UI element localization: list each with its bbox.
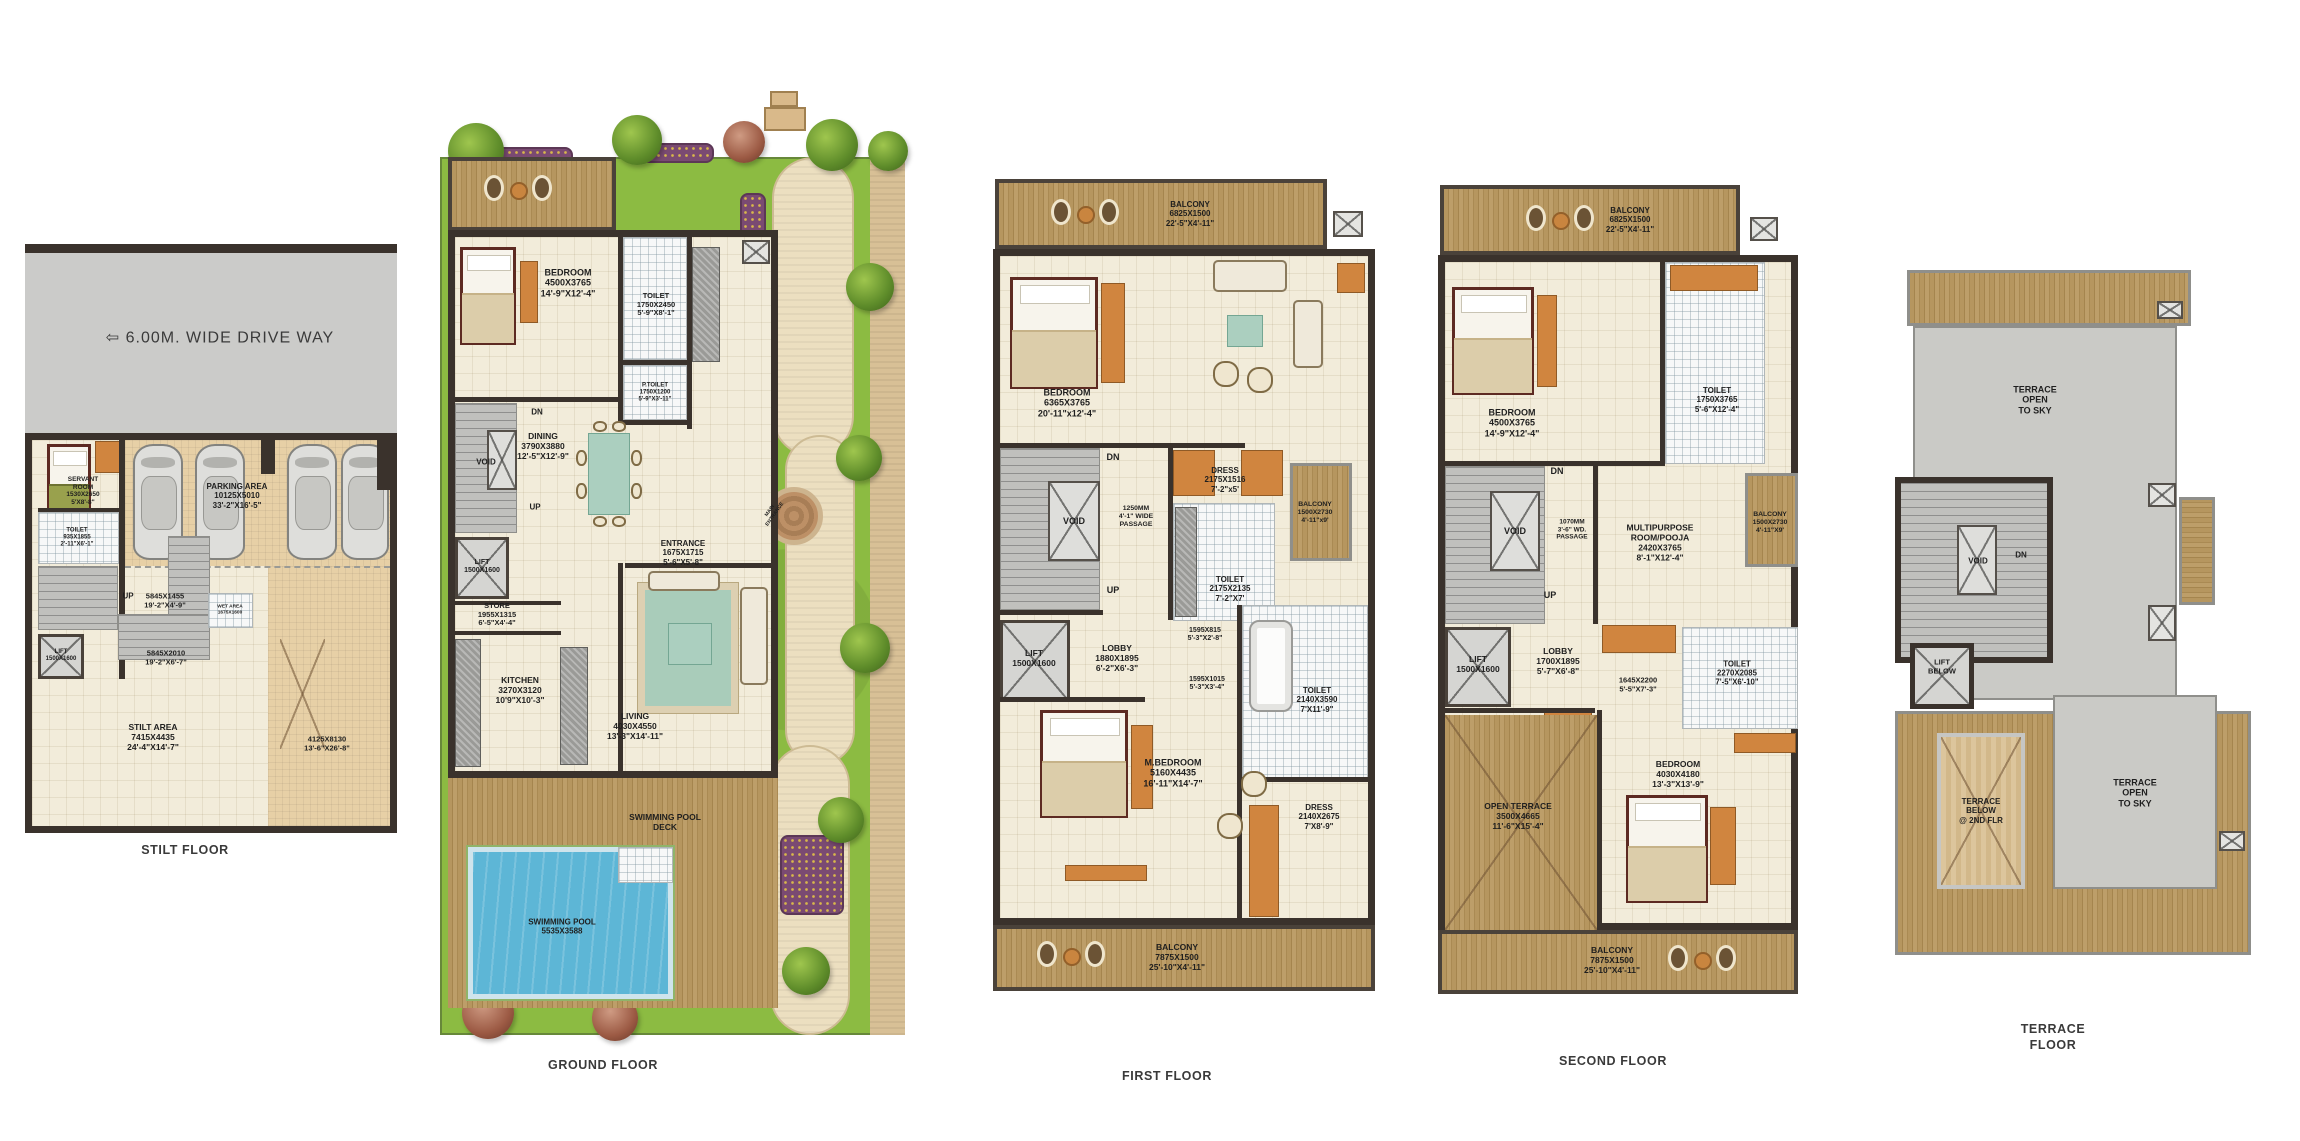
bathtub-icon — [1249, 620, 1293, 712]
ground-floor: BEDROOM4500X376514'-9"X12'-4"TOILET1750X… — [440, 135, 905, 1085]
tree-icon — [612, 115, 662, 165]
lobby-label: LOBBY1880X18956'-2"X6'-3" — [1095, 644, 1139, 674]
chair-icon — [612, 516, 626, 527]
balcony-side-label: BALCONY1500X27304'-11"x9' — [1298, 501, 1333, 525]
entry-deck — [448, 157, 616, 231]
terrace-floor: TERRACEOPENTO SKYVOIDDNLIFTBELOWTERRACEO… — [1895, 265, 2275, 1065]
kitchen-counter — [560, 647, 588, 765]
floorplan-canvas: ⇦ 6.00M. WIDE DRIVE WAYPARKING AREA10125… — [0, 0, 2300, 1141]
up-label: UP — [1107, 585, 1120, 595]
pool-deck-label: SWIMMING POOLDECK — [629, 813, 701, 833]
bedroom-label: BEDROOM4500X376514'-9"X12'-4" — [541, 267, 596, 298]
dim-label: 5845X201019'-2"X6'-7" — [145, 649, 187, 666]
parking-column — [377, 440, 390, 490]
stairs — [38, 566, 118, 630]
dn-label: DN — [2015, 550, 2027, 559]
coffee-table-icon — [668, 623, 712, 665]
car-icon — [287, 444, 337, 560]
duct — [2148, 605, 2176, 641]
parking-column — [261, 440, 275, 474]
parking-area-label: PARKING AREA10125X501033'-2"X16'-5" — [207, 482, 268, 510]
toilet-label: TOILET2175X21357'-2"X7' — [1210, 575, 1251, 603]
passage-label: 1070MM3'-6" WD.PASSAGE — [1556, 519, 1587, 542]
deck-table-icon — [510, 182, 528, 200]
wall — [1593, 466, 1598, 624]
dim-label: 1595X8155'-3"X2'-8" — [1188, 627, 1223, 643]
duct — [1750, 217, 1778, 241]
bed-icon — [1626, 795, 1708, 903]
stilt-area-label: STILT AREA7415X443524'-4"X14'-7" — [127, 723, 179, 753]
side-balcony-below — [2179, 497, 2215, 605]
duct — [2219, 831, 2245, 851]
up-label: UP — [1544, 590, 1557, 600]
balcony-chair-icon — [1668, 945, 1688, 971]
lift-below-label: LIFTBELOW — [1928, 658, 1956, 675]
up-label: UP — [122, 591, 133, 600]
deck-chair-icon — [532, 175, 552, 201]
balcony-chair-icon — [1099, 199, 1119, 225]
balcony-chair-icon — [1085, 941, 1105, 967]
lift-label: LIFT1500X1600 — [1456, 655, 1500, 675]
dining-label: DINING3790X388012'-5"X12'-9" — [517, 432, 569, 462]
dining-table-icon — [588, 433, 630, 515]
balcony-side-label: BALCONY1500X27304'-11"X9' — [1753, 511, 1788, 535]
side-table-icon — [1337, 263, 1365, 293]
lift-shaft — [1910, 643, 1974, 709]
balcony-table-icon — [1077, 206, 1095, 224]
ground-floor-caption: GROUND FLOOR — [548, 1057, 658, 1073]
entrance-label: ENTRANCE1675X17155'-6"X5'-8" — [661, 539, 705, 567]
up-label: UP — [529, 502, 540, 511]
void-label: VOID — [476, 457, 496, 466]
tree-icon — [868, 131, 908, 171]
tree-icon — [840, 623, 890, 673]
living-label: LIVING4030X455013'-3"X14'-11" — [607, 712, 663, 742]
lift-label: LIFT1500X1600 — [46, 649, 77, 663]
wall — [687, 237, 692, 429]
kitchen-counter — [455, 639, 481, 767]
driveway-label: ⇦ 6.00M. WIDE DRIVE WAY — [106, 330, 334, 349]
balcony-bottom-label: BALCONY7875X150025'-10"X4'-11" — [1149, 943, 1205, 973]
passage-label: 1250MM4'-1" WIDEPASSAGE — [1119, 505, 1153, 529]
first-floor-caption: FIRST FLOOR — [1122, 1068, 1212, 1084]
garden-path — [772, 157, 854, 457]
balcony-table-icon — [1063, 948, 1081, 966]
m-bedroom-label: M.BEDROOM5160X443516'-11"X14'-7" — [1143, 757, 1202, 788]
balcony-table-icon — [1552, 212, 1570, 230]
parking-edge-line — [125, 566, 390, 568]
dim-label: 4125X813013'-6"X26'-8" — [304, 735, 350, 752]
bedroom3-label: BEDROOM4030X418013'-3"X13'-9" — [1652, 760, 1704, 790]
wall — [1597, 710, 1602, 930]
wall — [455, 397, 621, 402]
pool-label: SWIMMING POOL5535X3588 — [528, 918, 596, 937]
chair-icon — [1217, 813, 1243, 839]
toilet-label: TOILET1750X24505'-9"X8'-1" — [637, 292, 675, 318]
store-label: STORE1955X13156'-5"X4'-4" — [478, 602, 516, 628]
chaise-icon — [1293, 300, 1323, 368]
multipurpose-label: MULTIPURPOSEROOM/POOJA2420X37658'-1"X12'… — [1627, 523, 1694, 562]
tree-icon — [836, 435, 882, 481]
wet-area-label: WET AREA1675X1600 — [217, 604, 242, 615]
stilt-floor: ⇦ 6.00M. WIDE DRIVE WAYPARKING AREA10125… — [25, 244, 397, 864]
balcony-top-label: BALCONY6825X150022'-5"X4'-11" — [1166, 200, 1214, 228]
bench-icon — [520, 261, 538, 323]
terrace-top-deck — [1907, 270, 2191, 326]
chair-icon — [1247, 367, 1273, 393]
chair-icon — [576, 450, 587, 466]
deck-chair-icon — [484, 175, 504, 201]
wardrobe-icon — [1602, 625, 1676, 653]
duct — [2157, 301, 2183, 319]
chair-icon — [612, 421, 626, 432]
duct — [2148, 483, 2176, 507]
wardrobe-icon — [95, 441, 121, 473]
toilet-label: TOILET1750X37655'-6"X12'-4" — [1695, 386, 1739, 414]
balcony-chair-icon — [1526, 205, 1546, 231]
void-label: VOID — [1968, 556, 1988, 565]
dim-label: 1595X10155'-3"X3'-4" — [1189, 676, 1225, 692]
balcony-chair-icon — [1716, 945, 1736, 971]
chair-icon — [631, 450, 642, 466]
terrace-open-label: TERRACEOPENTO SKY — [2013, 384, 2057, 415]
sofa-icon — [740, 587, 768, 685]
lift-label: LIFT1500X1600 — [464, 559, 500, 575]
terrace-below-label: TERRACEBELOW@ 2ND FLR — [1959, 797, 2003, 825]
balcony-bottom-label: BALCONY7875X150025'-10"X4'-11" — [1584, 946, 1640, 976]
entry-gate — [770, 91, 798, 107]
driveway-top-wall — [25, 244, 397, 253]
bed-icon — [1010, 277, 1098, 389]
sofa-icon — [648, 571, 720, 591]
kitchen-label: KITCHEN3270X312010'9"X10'-3" — [496, 676, 545, 706]
balcony-chair-icon — [1037, 941, 1057, 967]
wall — [993, 610, 1103, 615]
balcony-table-icon — [1694, 952, 1712, 970]
wall — [455, 631, 561, 635]
bench-icon — [1101, 283, 1125, 383]
vanity-counter — [1175, 507, 1197, 617]
duct — [742, 240, 770, 264]
servant-toilet-label: TOILET935X18552'-11"X6'-1" — [61, 528, 94, 549]
coffee-table-icon — [1227, 315, 1263, 347]
dress2-label: DRESS2140X26757'X8'-9" — [1299, 803, 1340, 831]
dress-wardrobe — [1241, 450, 1283, 496]
balcony-top — [995, 179, 1327, 249]
first-floor: BALCONY6825X150022'-5"X4'-11"BEDROOM6365… — [985, 165, 1390, 1110]
wardrobe-icon — [692, 247, 720, 362]
pool-step — [618, 847, 673, 883]
chair-icon — [593, 421, 607, 432]
chair-icon — [593, 516, 607, 527]
chair-icon — [631, 483, 642, 499]
bed-icon — [1040, 710, 1128, 818]
second-floor-caption: SECOND FLOOR — [1559, 1053, 1667, 1069]
chair-icon — [1213, 361, 1239, 387]
second-floor: BALCONY6825X150022'-5"X4'-11"TOILET1750X… — [1430, 165, 1815, 1110]
wall — [993, 697, 1145, 702]
void-label: VOID — [1504, 526, 1526, 536]
toilet-floor — [1665, 262, 1765, 464]
wall — [623, 420, 692, 425]
balcony-chair-icon — [1051, 199, 1071, 225]
wall — [1445, 708, 1595, 713]
chair-icon — [1241, 771, 1267, 797]
tree-icon — [723, 121, 765, 163]
console-icon — [1734, 733, 1796, 753]
bed-icon — [460, 247, 516, 345]
duct — [1333, 211, 1363, 237]
garden-path — [785, 435, 855, 765]
p-toilet-label: P.TOILET1750X12005'-9"X3'-11" — [639, 383, 672, 404]
shelf-icon — [1670, 265, 1758, 291]
bench-icon — [1710, 807, 1736, 885]
toilet2-label: TOILET2270X20857'-5"X6'-10" — [1715, 659, 1758, 686]
tree-icon — [846, 263, 894, 311]
lift-label: LIFT1500X1600 — [1012, 649, 1056, 669]
dn-label: DN — [531, 407, 543, 416]
lobby-label: LOBBY1700X18955'-7"X6'-8" — [1536, 647, 1580, 677]
sofa-icon — [1213, 260, 1287, 292]
console-icon — [1065, 865, 1147, 881]
terrace-floor-caption: TERRACEFLOOR — [2021, 1021, 2086, 1054]
toilet2-label: TOILET2140X35907'X11'-9" — [1297, 686, 1338, 714]
open-terrace-label: OPEN TERRACE3500X466511'-6"X15'-4" — [1484, 802, 1552, 832]
dress-label: DRESS2175X15167'-2"x5' — [1205, 466, 1246, 494]
bench-icon — [1537, 295, 1557, 387]
bedroom-label: BEDROOM4500X376514'-9"X12'-4" — [1485, 407, 1540, 438]
bed-icon — [1452, 287, 1534, 395]
balcony-top-label: BALCONY6825X150022'-5"X4'-11" — [1606, 206, 1654, 234]
servant-room-label: SERVANTROOM1530X26505'X8'-8" — [66, 476, 99, 506]
bedroom-label: BEDROOM6365X376520'-11"x12'-4" — [1038, 387, 1096, 418]
dim-label: 1645X22005'-5"X7'-3" — [1619, 676, 1657, 693]
dn-label: DN — [1107, 452, 1120, 462]
dn-label: DN — [1551, 466, 1564, 476]
balcony-chair-icon — [1574, 205, 1594, 231]
dress-wardrobe — [1249, 805, 1279, 917]
stilt-floor-caption: STILT FLOOR — [141, 842, 229, 858]
void-label: VOID — [1063, 516, 1085, 526]
entry-gate — [764, 107, 806, 131]
tree-icon — [818, 797, 864, 843]
flower-bed — [780, 835, 844, 915]
tree-icon — [806, 119, 858, 171]
chair-icon — [576, 483, 587, 499]
tree-icon — [782, 947, 830, 995]
terrace-open2-label: TERRACEOPENTO SKY — [2113, 777, 2157, 808]
planter-cutout — [280, 639, 325, 749]
dim-label: 5845X145519'-2"X4'-9" — [144, 592, 186, 609]
